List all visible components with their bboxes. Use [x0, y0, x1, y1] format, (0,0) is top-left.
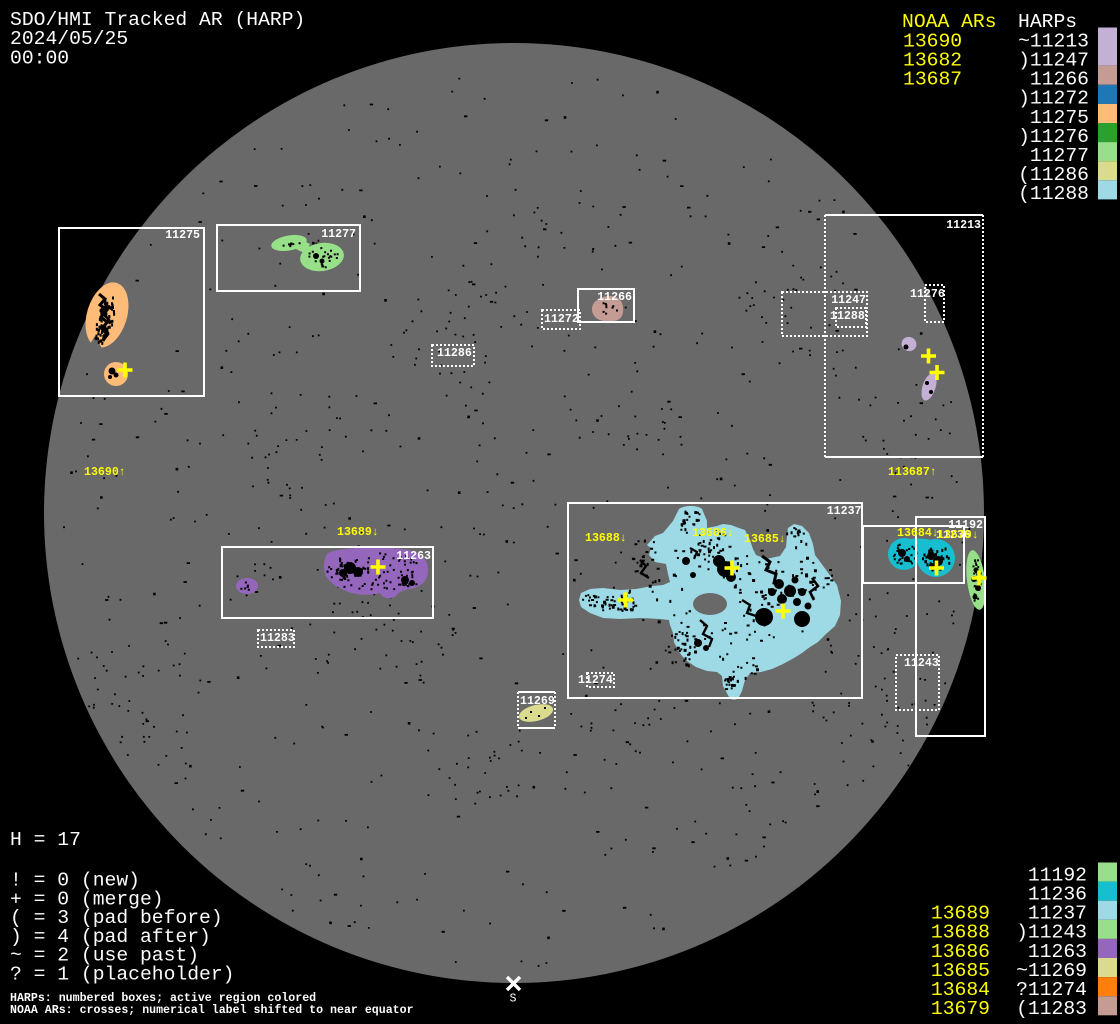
- svg-text:1: 1: [888, 466, 895, 479]
- svg-text:13688↓: 13688↓: [585, 532, 627, 545]
- svg-text:13690↑: 13690↑: [84, 466, 126, 479]
- svg-text:11277: 11277: [321, 228, 356, 241]
- svg-text:NOAA ARs: crosses; numerical l: NOAA ARs: crosses; numerical label shift…: [10, 1004, 414, 1017]
- svg-text:11283: 11283: [260, 632, 295, 645]
- svg-text:13689↓: 13689↓: [337, 526, 379, 539]
- svg-text:? = 1 (placeholder): ? = 1 (placeholder): [10, 963, 234, 985]
- svg-text:11213: 11213: [946, 219, 981, 232]
- svg-text:13684↓: 13684↓: [897, 527, 939, 540]
- svg-text:13679: 13679: [931, 998, 990, 1020]
- svg-text:13687: 13687: [903, 69, 962, 91]
- svg-text:11286: 11286: [437, 347, 472, 360]
- svg-text:11263: 11263: [396, 550, 431, 563]
- svg-text:11237: 11237: [827, 505, 862, 518]
- svg-text:11288: 11288: [830, 310, 865, 323]
- svg-text:11269: 11269: [520, 695, 555, 708]
- svg-text:13679↓: 13679↓: [937, 529, 979, 542]
- svg-text:11247: 11247: [831, 294, 866, 307]
- svg-text:13687↑: 13687↑: [895, 466, 937, 479]
- svg-text:H = 17: H = 17: [10, 829, 81, 851]
- svg-text:11275: 11275: [165, 229, 200, 242]
- svg-text:00:00: 00:00: [10, 47, 69, 69]
- svg-text:(11283: (11283: [1016, 998, 1087, 1020]
- svg-text:11276: 11276: [910, 288, 945, 301]
- svg-text:11266: 11266: [597, 291, 632, 304]
- svg-text:S: S: [510, 993, 517, 1006]
- svg-text:11274: 11274: [578, 674, 613, 687]
- svg-text:13686↓: 13686↓: [692, 527, 734, 540]
- svg-text:11243: 11243: [904, 657, 939, 670]
- svg-text:11272: 11272: [544, 313, 579, 326]
- svg-text:13685↓: 13685↓: [744, 533, 786, 546]
- svg-text:(11288: (11288: [1018, 183, 1089, 205]
